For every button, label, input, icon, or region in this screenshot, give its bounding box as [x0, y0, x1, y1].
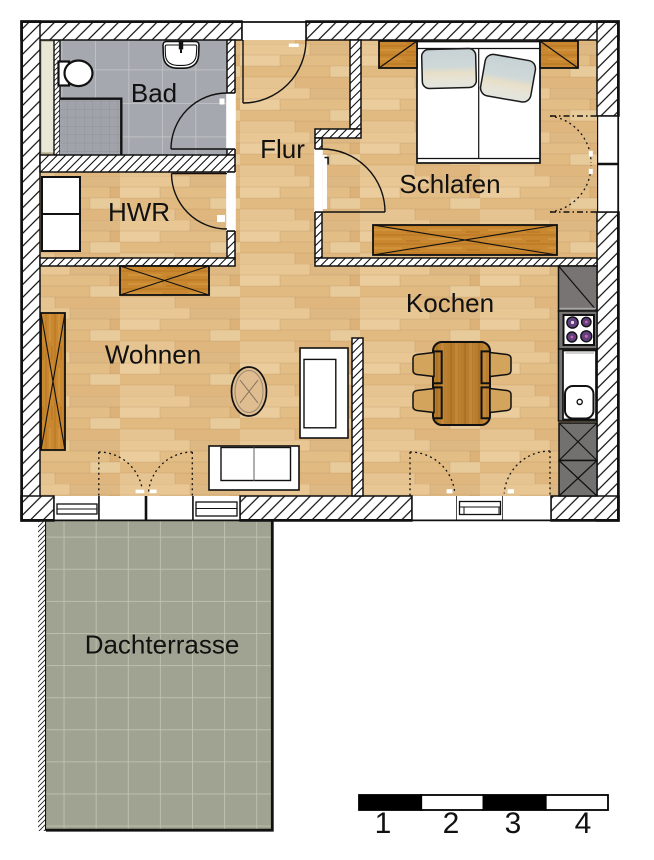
svg-text:1: 1 [375, 807, 392, 840]
svg-text:3: 3 [505, 807, 522, 840]
svg-text:Flur: Flur [260, 134, 305, 164]
svg-text:Bad: Bad [131, 78, 177, 108]
svg-text:Schlafen: Schlafen [399, 169, 500, 199]
svg-text:Wohnen: Wohnen [105, 340, 201, 370]
svg-text:4: 4 [575, 807, 592, 840]
svg-text:Dachterrasse: Dachterrasse [85, 630, 240, 660]
svg-text:2: 2 [443, 807, 460, 840]
svg-text:HWR: HWR [108, 197, 170, 227]
svg-text:Kochen: Kochen [406, 288, 494, 318]
